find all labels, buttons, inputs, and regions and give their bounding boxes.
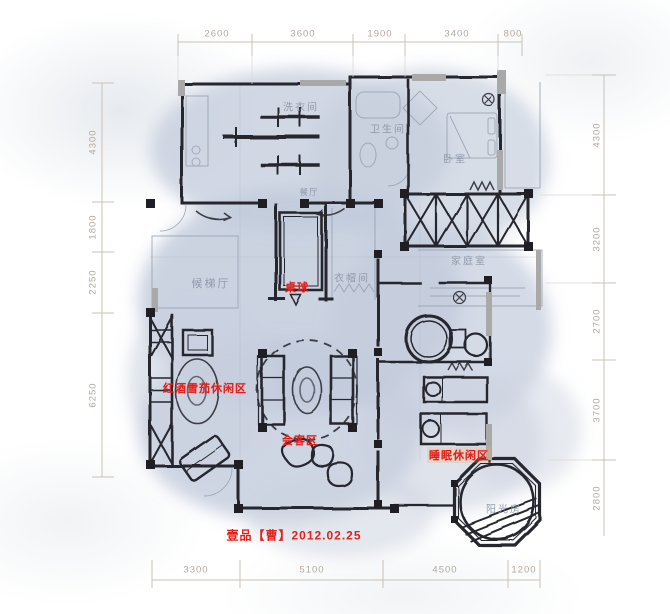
dim-left-3: 2250 (88, 269, 99, 294)
dim-top-2: 3600 (290, 29, 315, 40)
floor-plan-page: 2600 3600 1900 3400 800 3300 5100 4500 1… (0, 0, 670, 614)
dim-left-2: 1800 (88, 214, 99, 239)
zone-label-sleep-lounge: 睡眠休闲区 (427, 447, 491, 463)
dim-left-4: 6250 (88, 382, 99, 407)
dim-bottom-4: 1200 (511, 565, 536, 576)
room-label-bathroom: 卫生间 (370, 121, 406, 136)
room-label-elevator-hall: 候梯厅 (192, 275, 231, 291)
dim-right-3: 2700 (592, 308, 603, 333)
dim-right-1: 4300 (592, 122, 603, 147)
dim-bottom-3: 4500 (432, 565, 457, 576)
dim-bottom-2: 5100 (299, 565, 324, 576)
watermark-signature: 壹品【曹】2012.02.25 (226, 527, 361, 544)
dim-right-4: 3700 (592, 397, 603, 422)
dim-bottom-1: 3300 (183, 565, 208, 576)
dim-left-1: 4300 (88, 129, 99, 154)
room-label-family-room: 家庭室 (451, 253, 487, 268)
dim-top-3: 1900 (367, 29, 392, 40)
room-label-laundry: 洗衣间 (283, 99, 319, 114)
dim-top-4: 3400 (444, 29, 469, 40)
dim-top-1: 2600 (204, 29, 229, 40)
room-label-sunroom: 阳光房 (486, 501, 522, 516)
dim-right-2: 3200 (592, 226, 603, 251)
zone-label-wine-cigar-lounge: 红酒雪茄休闲区 (163, 380, 247, 396)
zone-label-reception: 会客区 (282, 432, 318, 448)
room-label-cloakroom: 衣帽间 (334, 270, 370, 285)
label-layer: 2600 3600 1900 3400 800 3300 5100 4500 1… (0, 0, 670, 614)
dim-right-5: 2800 (592, 485, 603, 510)
room-label-dining: 餐厅 (299, 186, 318, 198)
dim-top-5: 800 (504, 29, 523, 40)
room-label-bedroom: 卧室 (443, 151, 467, 166)
zone-label-billiards: 桌球 (285, 279, 309, 295)
